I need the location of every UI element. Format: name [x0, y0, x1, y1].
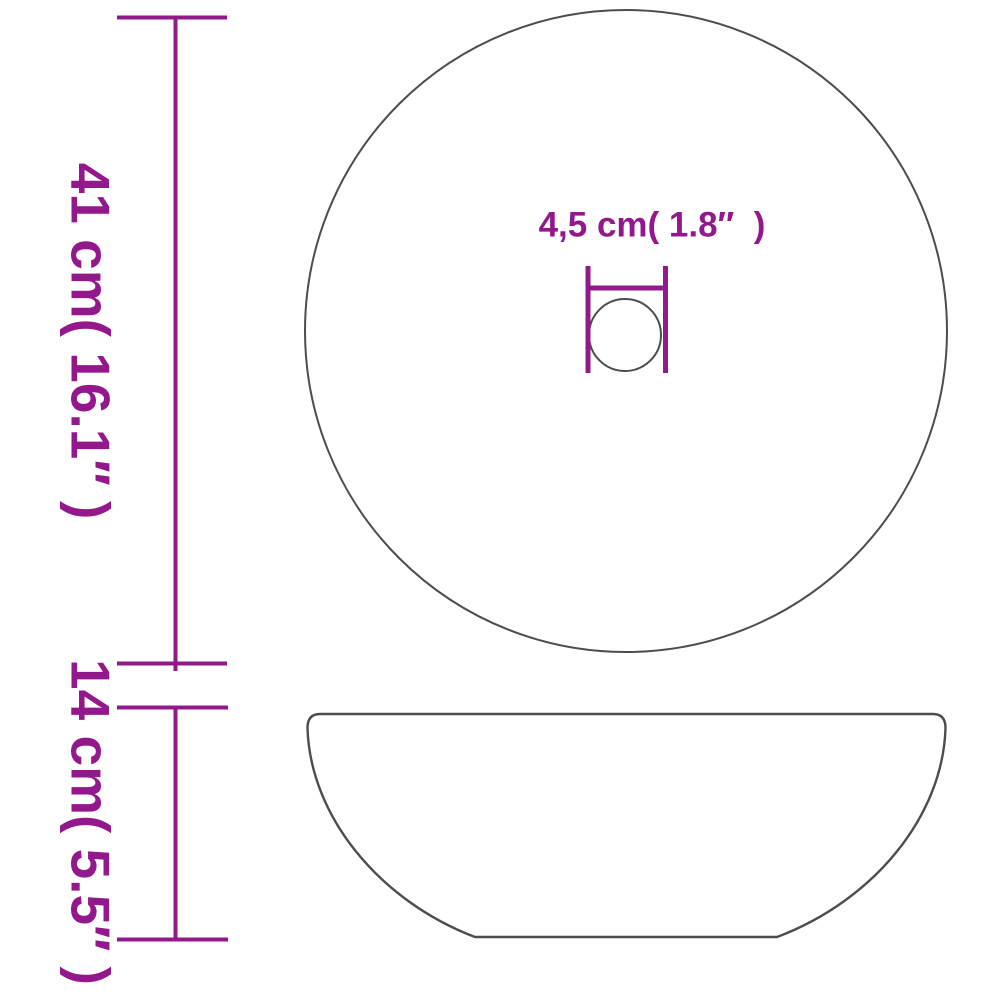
- top-view-basin-outline: [305, 10, 947, 652]
- drain-hole-outline: [589, 299, 661, 371]
- diagram-canvas: [0, 0, 1000, 1000]
- side-view-basin-outline: [308, 714, 946, 937]
- height-dimension-line: [117, 707, 228, 940]
- drain-dimension-marker: [586, 266, 669, 373]
- diameter-dimension-label: 41 cm( 16.1″ ): [63, 163, 118, 520]
- product-dimension-diagram: 41 cm( 16.1″ ) 14 cm( 5.5″ ) 4,5 cm( 1.8…: [0, 0, 1000, 1000]
- drain-dimension-label: 4,5 cm( 1.8″ ): [539, 208, 766, 243]
- diameter-dimension-line: [117, 17, 227, 671]
- height-dimension-label: 14 cm( 5.5″ ): [63, 659, 118, 985]
